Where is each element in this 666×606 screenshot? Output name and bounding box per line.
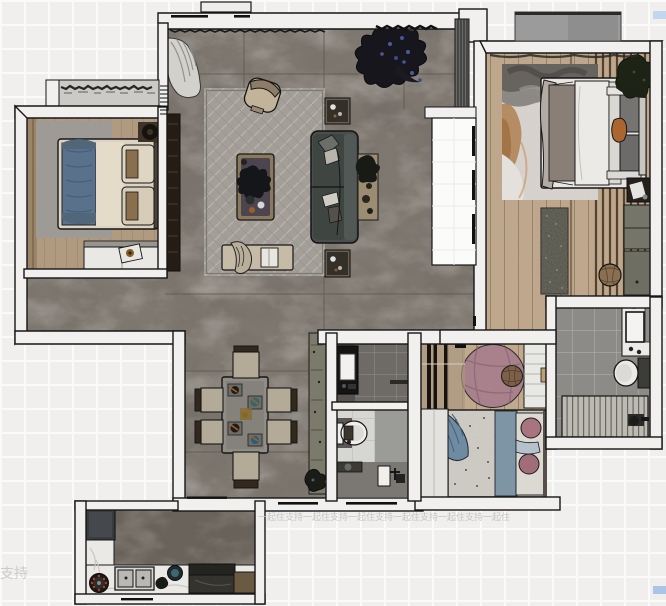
svg-text:支持: 支持 [0,565,28,581]
svg-text:一起住支持一起住支持一起住支持一起住支持一起住支持一起住: 一起住支持一起住支持一起住支持一起住支持一起住支持一起住 [258,511,510,522]
